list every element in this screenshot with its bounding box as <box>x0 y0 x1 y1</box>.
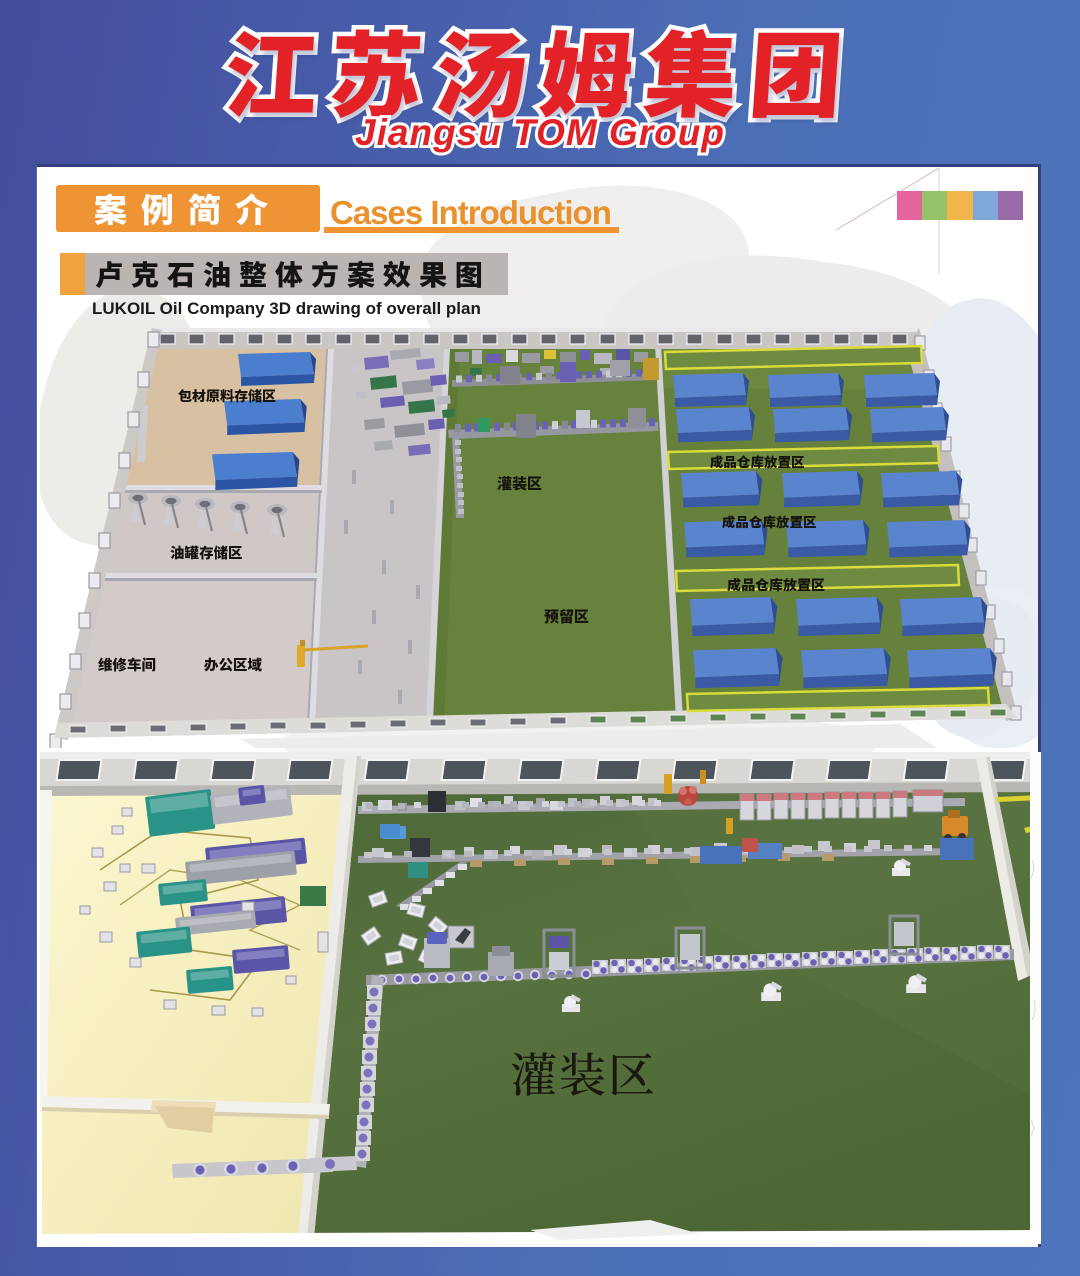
svg-text:成品仓库放置区: 成品仓库放置区 <box>727 575 825 595</box>
svg-text:成品仓库放置区: 成品仓库放置区 <box>721 511 817 531</box>
svg-text:办公区域: 办公区域 <box>204 654 263 675</box>
svg-text:预留区: 预留区 <box>543 606 589 627</box>
svg-text:灌装区: 灌装区 <box>497 473 542 494</box>
svg-text:成品仓库放置区: 成品仓库放置区 <box>709 451 805 471</box>
svg-text:维修车间: 维修车间 <box>97 654 156 675</box>
svg-text:包材原料存储区: 包材原料存储区 <box>178 386 276 406</box>
svg-text:油罐存储区: 油罐存储区 <box>170 542 243 563</box>
svg-text:灌装区: 灌装区 <box>510 1039 657 1106</box>
